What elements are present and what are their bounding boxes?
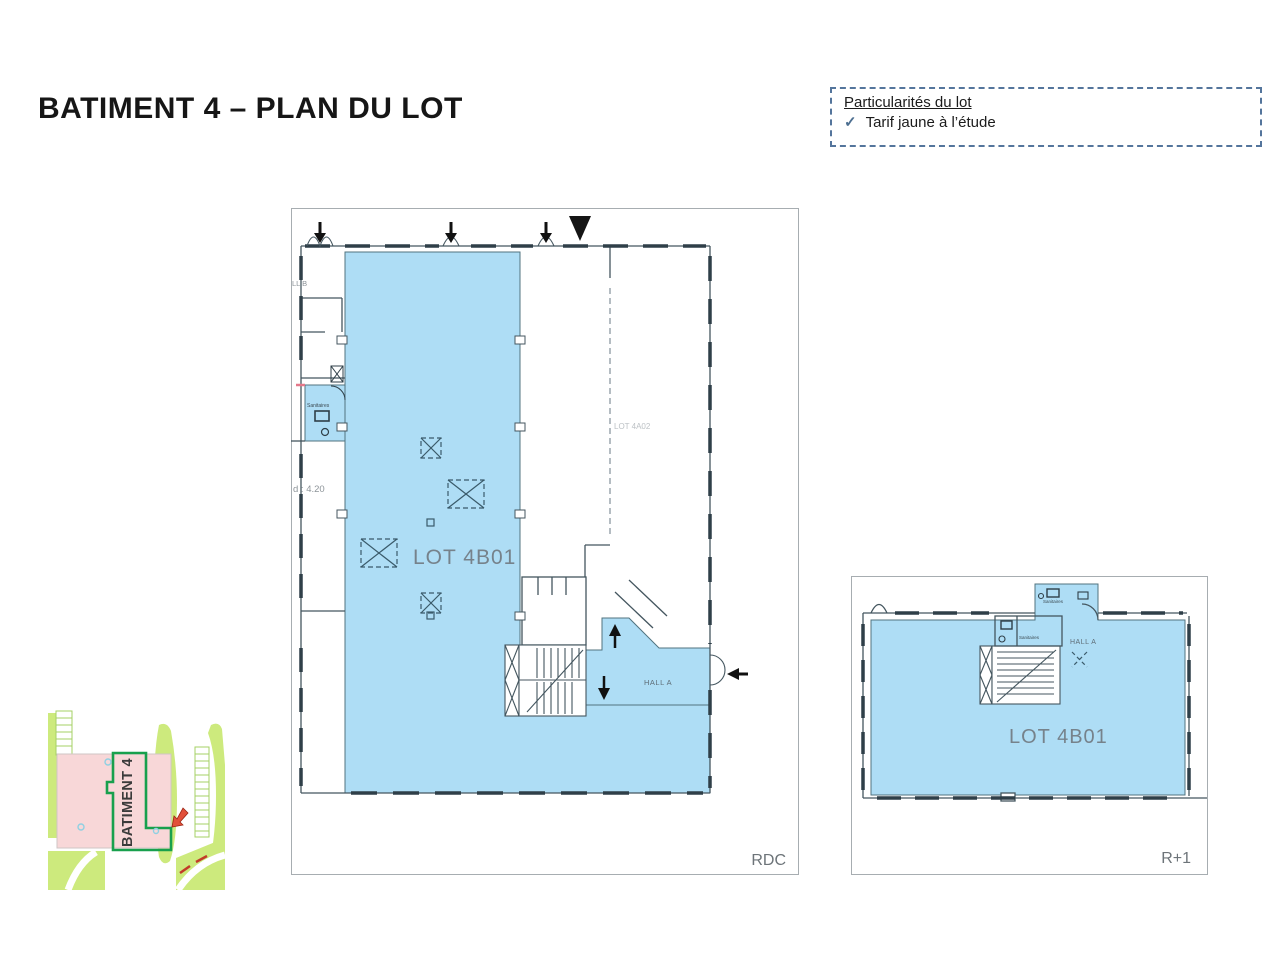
lot-4b01-label-r1: LOT 4B01 (1009, 726, 1108, 748)
particularites-box: Particularités du lot ✓Tarif jaune à l’é… (830, 87, 1262, 147)
parking-stalls-right (195, 747, 209, 837)
site-building-label: BATIMENT 4 (120, 758, 136, 847)
stairs-rdc (505, 645, 586, 716)
hall-a-label-r1: HALL A (1070, 639, 1096, 646)
particularites-heading: Particularités du lot (844, 94, 1248, 111)
particularites-item-text: Tarif jaune à l’étude (866, 114, 996, 131)
sanitaires-top-label: Sanitaires (1043, 599, 1064, 604)
site-map: BATIMENT 4 (48, 705, 225, 890)
lot-4b01-label-rdc: LOT 4B01 (413, 546, 516, 569)
stairs-r1 (980, 646, 1060, 704)
sanitaires-label-rdc: Sanitaires (307, 403, 330, 409)
lot-4a02-label: LOT 4A02 (614, 422, 651, 431)
sanitaires-inner-label: Sanitaires (1019, 635, 1040, 640)
sanitaires-room-rdc (305, 385, 345, 441)
document-page: BATIMENT 4 – PLAN DU LOT Particularités … (0, 0, 1280, 960)
hall-b-partial-label: LL B (292, 279, 307, 288)
floor-plan-r1: Sanitaires Sanitaires HALL A LOT 4B01 R+… (851, 576, 1208, 875)
page-title: BATIMENT 4 – PLAN DU LOT (38, 92, 463, 126)
floor-label-rdc: RDC (751, 852, 786, 869)
parking-stalls-left (56, 711, 72, 755)
hall-a-label-rdc: HALL A (644, 678, 672, 687)
floor-label-r1: R+1 (1161, 850, 1191, 867)
check-icon: ✓ (844, 114, 857, 131)
height-label: d : 4.20 (293, 484, 325, 495)
particularites-item: ✓Tarif jaune à l’étude (844, 113, 1248, 131)
floor-plan-rdc: LL B d : 4.20 LOT 4A02 LOT 4B01 Sanitair… (291, 208, 799, 875)
